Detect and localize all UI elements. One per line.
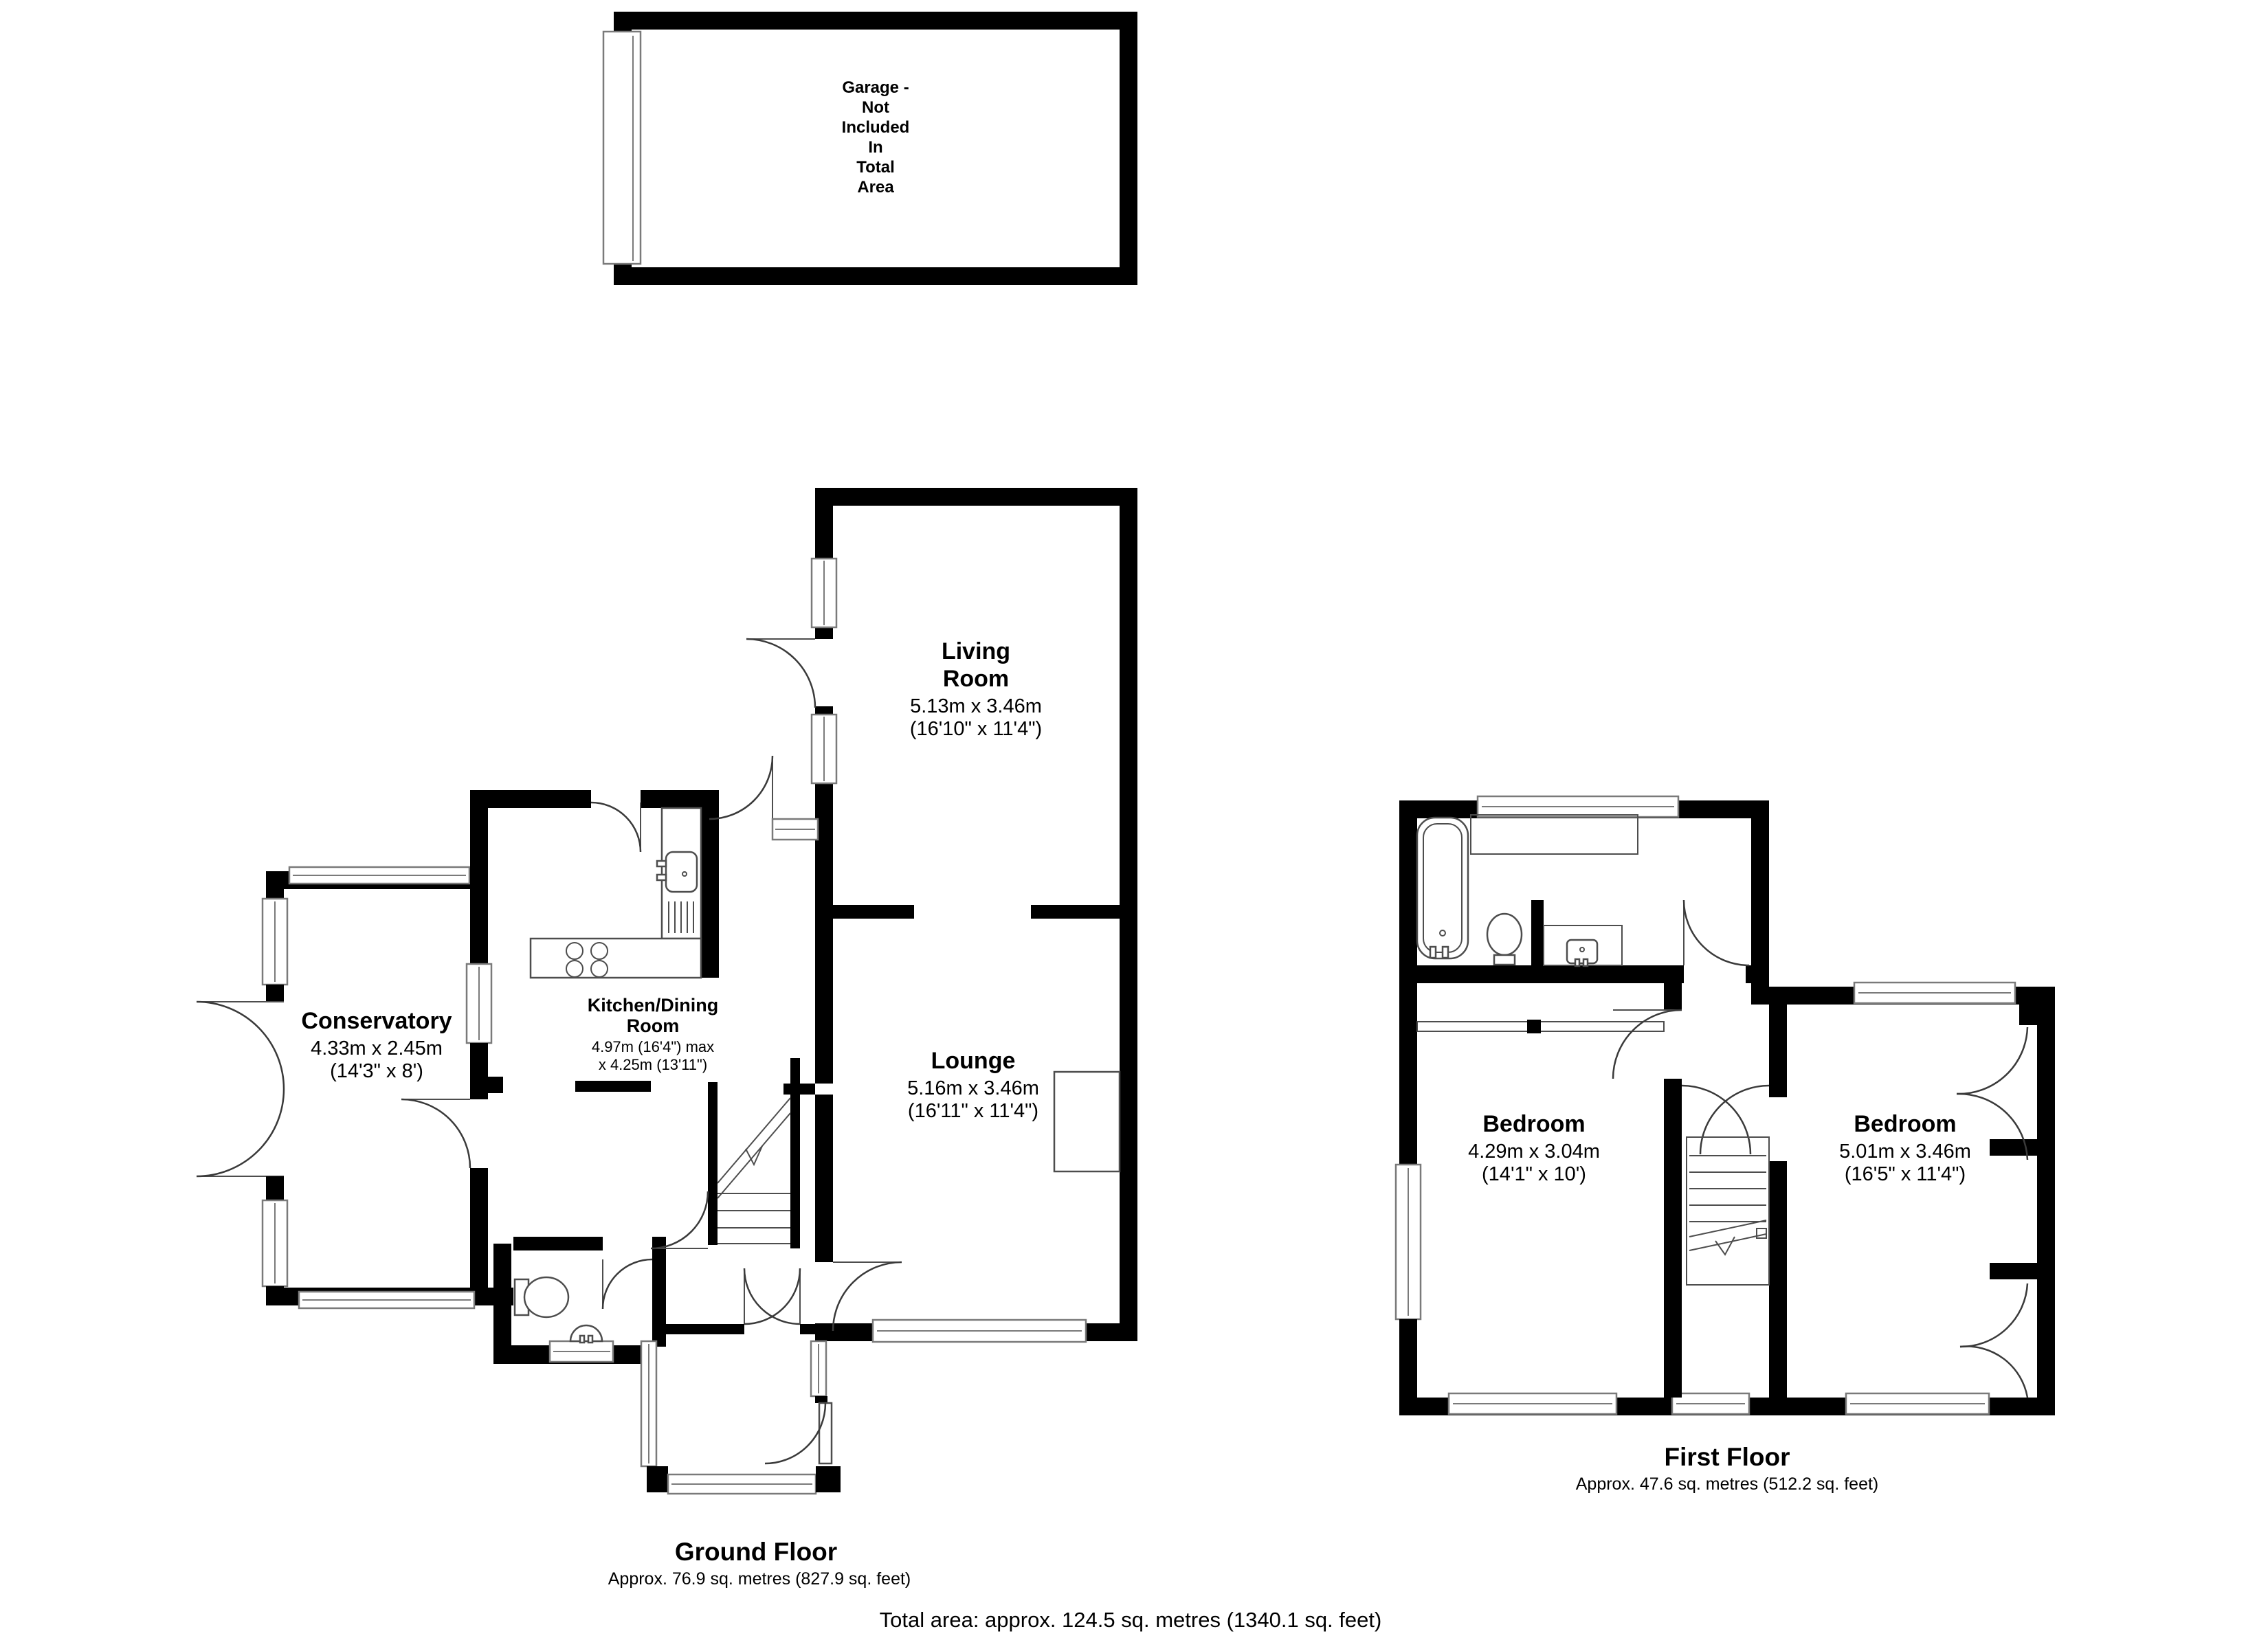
conservatory-dims: (14'3" x 8') [330, 1060, 423, 1083]
lounge-dims: 5.16m x 3.46m [907, 1077, 1039, 1100]
first-floor-outer-walls [1396, 796, 2055, 1415]
closet-bottom-doors [1960, 1283, 2027, 1398]
bedroom-left-name: Bedroom [1482, 1110, 1585, 1138]
first-floor-partitions [1417, 983, 1787, 1398]
lounge-fireplace [1054, 1072, 1120, 1171]
bedroom-left-window-bottom [1449, 1393, 1616, 1414]
conservatory-french-doors [197, 1002, 284, 1176]
bedroom-right-dims: (16'5" x 11'4") [1845, 1163, 1966, 1186]
garage-label: In [868, 137, 882, 157]
bedroom-left-dims: (14'1" x 10') [1482, 1163, 1586, 1186]
garage-door [603, 32, 641, 264]
kitchen-dims: 4.97m (16'4") max [592, 1038, 714, 1056]
conservatory-window-left-upper [263, 899, 287, 985]
porch-window-left [641, 1341, 656, 1466]
bathroom-basin [1544, 926, 1622, 966]
kitchen-rear-door [591, 803, 641, 852]
bathroom-window [1478, 796, 1678, 817]
wc-window [550, 1341, 613, 1362]
first-floor-area: Approx. 47.6 sq. metres (512.2 sq. feet) [1576, 1474, 1879, 1494]
ground-floor-title: Ground Floor [675, 1538, 837, 1567]
conservatory-door [401, 1099, 470, 1168]
lounge-dims: (16'11" x 11'4") [908, 1100, 1038, 1123]
porch-hall-doors [744, 1268, 800, 1324]
bathroom-bath [1417, 818, 1468, 958]
conservatory-window-bottom [299, 1292, 474, 1308]
garage-label: Garage - [842, 78, 909, 98]
wc-basin [570, 1325, 602, 1343]
porch-window-bottom [668, 1474, 816, 1494]
living-lounge-divider [815, 905, 1137, 919]
bedroom-left-door [1613, 1010, 1682, 1079]
bedroom-right-name: Bedroom [1854, 1110, 1956, 1138]
bedroom-right-dims: 5.01m x 3.46m [1839, 1141, 1971, 1163]
wc-toilet [515, 1277, 568, 1317]
bedroom-left-dims: 4.29m x 3.04m [1468, 1141, 1600, 1163]
garage-label: Not [862, 98, 889, 117]
porch-window-right [811, 1341, 826, 1396]
front-door [765, 1403, 832, 1463]
living-room-name: Room [943, 665, 1009, 693]
first-floor-stairs [1687, 1137, 1769, 1285]
wc-door [603, 1259, 652, 1309]
ground-floor-area: Approx. 76.9 sq. metres (827.9 sq. feet) [608, 1569, 911, 1589]
floorplan-drawing [0, 0, 2268, 1649]
bathroom [1399, 815, 1769, 983]
bathroom-toilet [1487, 914, 1522, 965]
bathroom-door [1684, 900, 1749, 965]
wc-walls [493, 1237, 666, 1364]
living-room-name: Living [942, 638, 1010, 665]
first-floor-title: First Floor [1665, 1443, 1790, 1472]
conservatory-window-top [289, 867, 469, 884]
bedroom-right-window-bottom [1846, 1393, 1989, 1414]
kitchen-name: Kitchen/Dining [588, 995, 719, 1016]
kitchen-hob-counter [531, 939, 701, 978]
bedroom-right-window-top [1854, 983, 2015, 1003]
total-area: Total area: approx. 124.5 sq. metres (13… [880, 1608, 1382, 1633]
porch-walls [641, 1268, 841, 1494]
bedroom-left-window-side [1396, 1165, 1421, 1319]
lounge-window-bottom [873, 1320, 1086, 1342]
kitchen-sink-unit [657, 808, 701, 939]
rear-lobby-window [772, 819, 818, 840]
conservatory-name: Conservatory [301, 1007, 452, 1035]
floorplan-page: Garage - Not Included In Total Area Livi… [0, 0, 2268, 1649]
living-room-dims: 5.13m x 3.46m [910, 695, 1042, 718]
living-room-dims: (16'10" x 11'4") [910, 718, 1042, 741]
kitchen-name: Room [627, 1016, 680, 1036]
conservatory-dims: 4.33m x 2.45m [311, 1037, 443, 1060]
living-room-window-upper [812, 559, 836, 627]
conservatory-window-left-lower [263, 1200, 287, 1286]
bathroom-fitted-unit [1471, 815, 1638, 854]
landing-doors [1682, 1086, 1769, 1154]
lounge-walls [783, 919, 1137, 1342]
kitchen-dims: x 4.25m (13'11") [599, 1056, 707, 1074]
landing-window-bottom [1672, 1393, 1749, 1414]
lounge-name: Lounge [931, 1047, 1016, 1075]
living-room-side-door [746, 639, 815, 708]
conservatory-window-right [467, 964, 491, 1043]
garage-label: Included [842, 117, 910, 137]
garage-label: Area [857, 177, 893, 197]
living-room-window-lower [812, 715, 836, 783]
bedroom-right-closets [1957, 1005, 2037, 1398]
garage-label: Total [856, 157, 895, 177]
